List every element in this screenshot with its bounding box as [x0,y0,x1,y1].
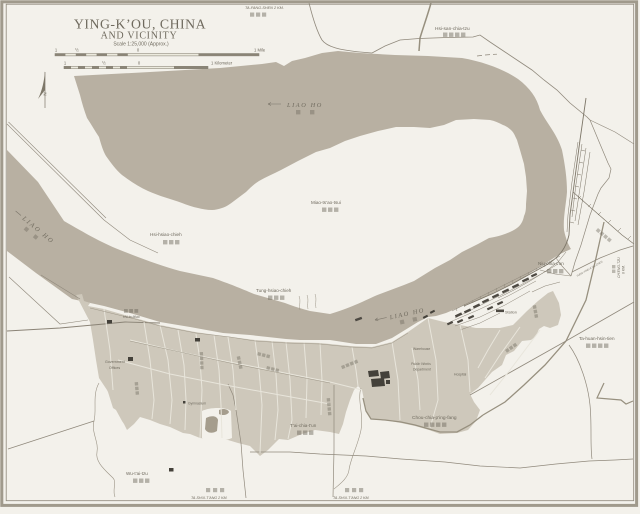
svg-text:Wu-t’ai-tzu: Wu-t’ai-tzu [126,471,148,476]
svg-text:CH’ENG-TZU: CH’ENG-TZU [617,257,621,278]
svg-text:Tung-hsiao-chieh: Tung-hsiao-chieh [256,288,292,293]
svg-text:Hospital: Hospital [454,373,466,377]
svg-text:Niu-chia-t’un: Niu-chia-t’un [538,261,564,266]
svg-text:Offices: Offices [109,366,120,370]
svg-text:Department: Department [413,368,432,372]
svg-text:1 Mile: 1 Mile [254,48,266,53]
svg-text:TA-SHUI-T’ANG 2 KM.: TA-SHUI-T’ANG 2 KM. [333,496,369,500]
svg-text:6 KM.: 6 KM. [622,265,626,274]
svg-text:N: N [43,92,48,95]
svg-text:LIAO HO: LIAO HO [286,102,323,109]
svg-text:Hsi-ta Miao: Hsi-ta Miao [123,315,140,319]
svg-text:TA-FANG-SHEN 2 KM.: TA-FANG-SHEN 2 KM. [245,6,284,10]
svg-text:Scale 1:25,000 (Approx.): Scale 1:25,000 (Approx.) [113,42,169,48]
svg-text:Government: Government [105,360,125,364]
svg-text:Warehouse: Warehouse [413,347,430,351]
svg-text:T’ai-chia-t’un: T’ai-chia-t’un [290,423,317,428]
svg-text:Miao-ts’ao-tsui: Miao-ts’ao-tsui [311,200,341,205]
svg-text:AND VICINITY: AND VICINITY [101,30,178,41]
svg-text:1 Kilometer: 1 Kilometer [211,60,233,65]
svg-text:YING-K’OU, CHINA: YING-K’OU, CHINA [74,16,206,31]
svg-text:Station: Station [505,311,517,315]
svg-text:Ta-huan-hsin-tien: Ta-huan-hsin-tien [579,336,615,341]
svg-text:Chou-chia-p’ing-fang: Chou-chia-p’ing-fang [412,415,457,421]
svg-text:½: ½ [75,48,79,53]
svg-text:Hsi-san-chia-tzu: Hsi-san-chia-tzu [435,26,470,32]
svg-text:Gymnasium: Gymnasium [188,402,206,406]
svg-text:½: ½ [102,60,106,65]
svg-text:TA-SHUI-T’ANG 2 KM.: TA-SHUI-T’ANG 2 KM. [191,496,227,500]
svg-text:Public Works: Public Works [411,362,431,366]
svg-text:Hsi-hsiao-chieh: Hsi-hsiao-chieh [150,232,182,237]
